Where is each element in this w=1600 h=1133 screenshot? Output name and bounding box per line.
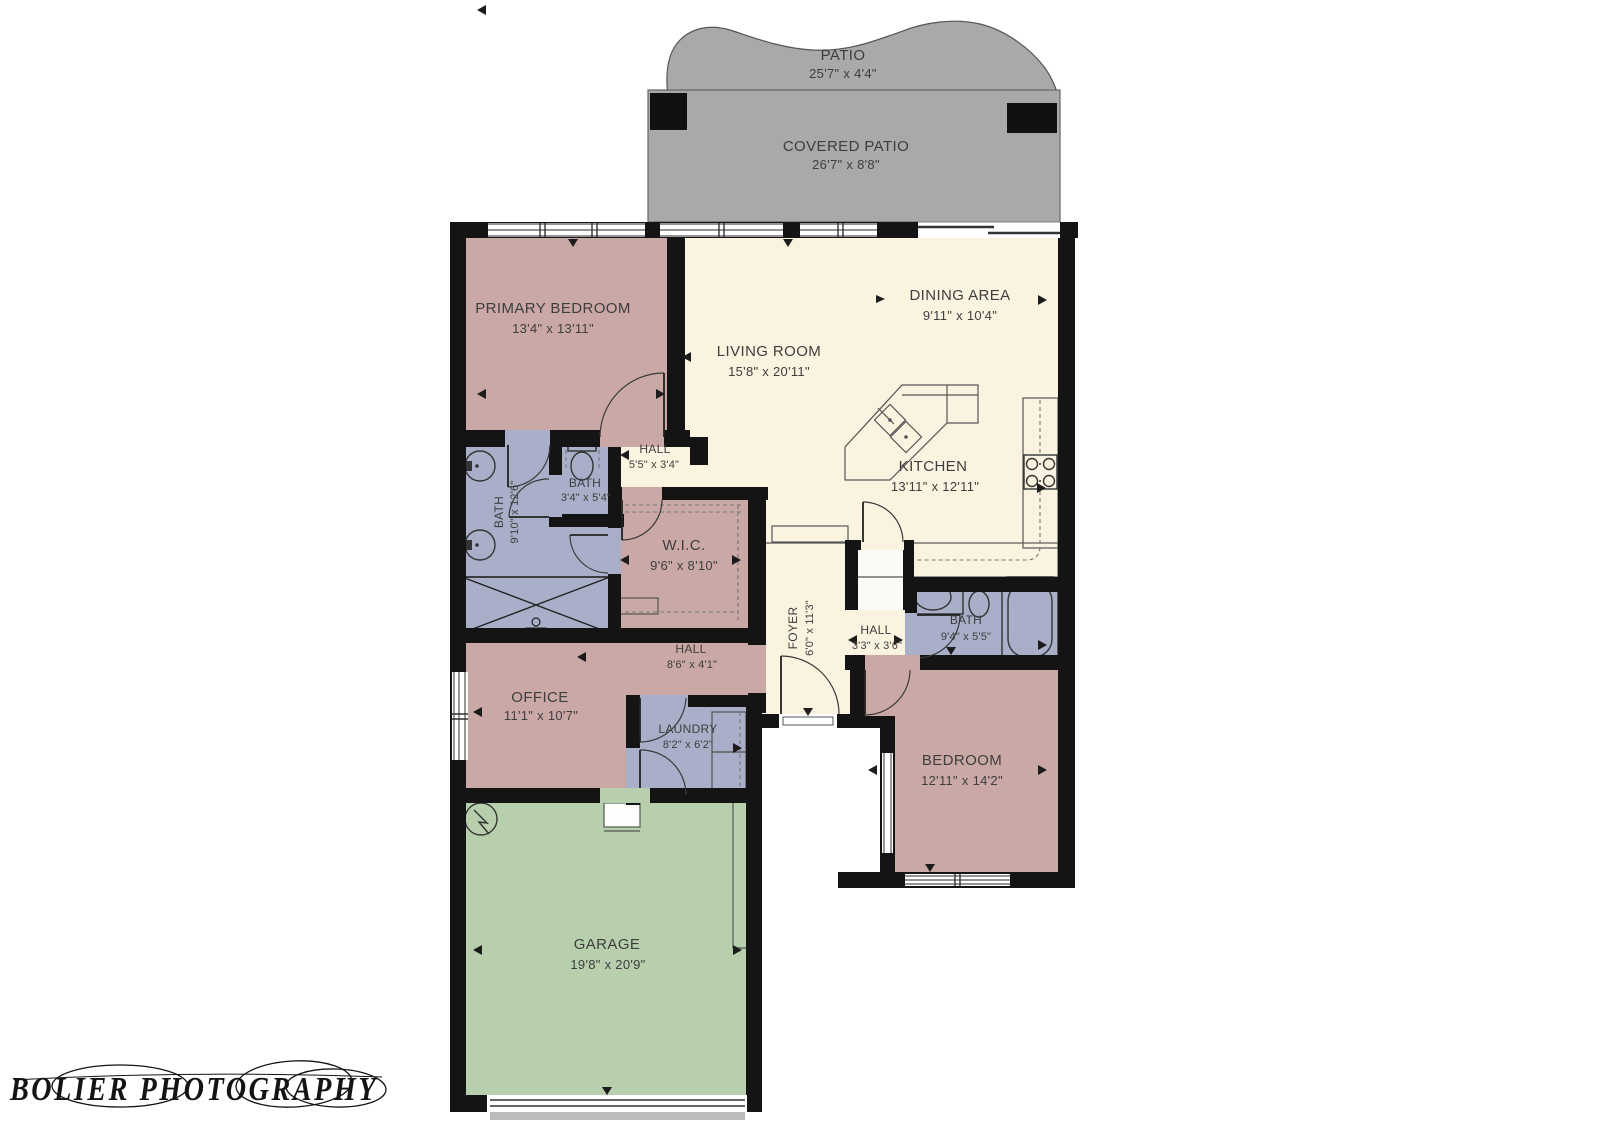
hall-office-dims: 8'6" x 4'1" <box>667 659 717 671</box>
bath-primary-label: BATH <box>492 496 506 528</box>
primary-bedroom-label: PRIMARY BEDROOM <box>475 300 630 317</box>
kitchen-dims: 13'11" x 12'11" <box>891 479 979 494</box>
dining-area-label: DINING AREA <box>909 287 1010 304</box>
sliding-door-dining <box>918 222 1060 238</box>
tub-fixture-primary <box>462 577 610 633</box>
bedroom-label: BEDROOM <box>922 752 1002 769</box>
stove-fixture <box>1024 455 1057 489</box>
garage-label: GARAGE <box>574 936 641 953</box>
wic-label: W.I.C. <box>662 537 705 554</box>
bath-guest-dims: 9'4" x 5'5" <box>941 631 991 643</box>
window-office <box>452 672 468 760</box>
kitchen-label: KITCHEN <box>899 458 968 475</box>
watermark: BOLIER PHOTOGRAPHY <box>9 1058 386 1110</box>
living-room-dims: 15'8" x 20'11" <box>728 364 810 379</box>
laundry-label: LAUNDRY <box>658 722 717 736</box>
garage-step <box>604 803 640 827</box>
covered-patio-dims: 26'7" x 8'8" <box>812 157 880 172</box>
laundry-dims: 8'2" x 6'2" <box>663 739 713 751</box>
floor-plan-drawing: PATIO 25'7" x 4'4" COVERED PATIO 26'7" x… <box>0 0 1600 1133</box>
garage-dims: 19'8" x 20'9" <box>570 957 645 972</box>
hall-upper-dims: 5'5" x 3'4" <box>629 459 679 471</box>
floor-plan-page: PATIO 25'7" x 4'4" COVERED PATIO 26'7" x… <box>0 0 1600 1133</box>
bedroom-dims: 12'11" x 14'2" <box>921 773 1003 788</box>
covered-patio-label: COVERED PATIO <box>783 138 909 155</box>
window-primary-bedroom <box>488 223 645 237</box>
hall-small-dims: 3'3" x 3'6" <box>852 640 902 652</box>
bath-guest-label: BATH <box>950 613 982 627</box>
window-bedroom-left <box>882 753 893 853</box>
patio-post-right <box>1007 103 1057 133</box>
window-living-room-1 <box>660 223 783 237</box>
bath-half-label: BATH <box>569 476 601 490</box>
foyer-label: FOYER <box>786 607 800 650</box>
patio-post-left <box>650 93 687 130</box>
hall-upper-label: HALL <box>639 442 670 456</box>
dining-area-dims: 9'11" x 10'4" <box>923 308 997 323</box>
bath-primary-dims: 9'10" x 12'6" <box>509 481 521 544</box>
window-bedroom-bottom <box>905 874 1010 886</box>
wic-dims: 9'6" x 8'10" <box>650 558 718 573</box>
watermark-text: BOLIER PHOTOGRAPHY <box>9 1071 378 1108</box>
closet-floor <box>855 548 905 610</box>
bath-half-dims: 3'4" x 5'4" <box>561 492 611 504</box>
foyer-dims: 6'0" x 11'3" <box>804 600 816 656</box>
covered-patio-shape <box>648 90 1060 222</box>
window-living-room-2 <box>800 223 877 237</box>
hall-small-label: HALL <box>860 623 891 637</box>
patio-dims: 25'7" x 4'4" <box>809 66 877 81</box>
primary-bedroom-dims: 13'4" x 13'11" <box>512 321 594 336</box>
office-label: OFFICE <box>511 689 568 706</box>
living-room-label: LIVING ROOM <box>717 343 821 360</box>
room-bath-guest-floor <box>905 592 1058 663</box>
office-dims: 11'1" x 10'7" <box>504 708 578 723</box>
patio-label: PATIO <box>821 47 866 64</box>
hall-office-label: HALL <box>675 642 706 656</box>
